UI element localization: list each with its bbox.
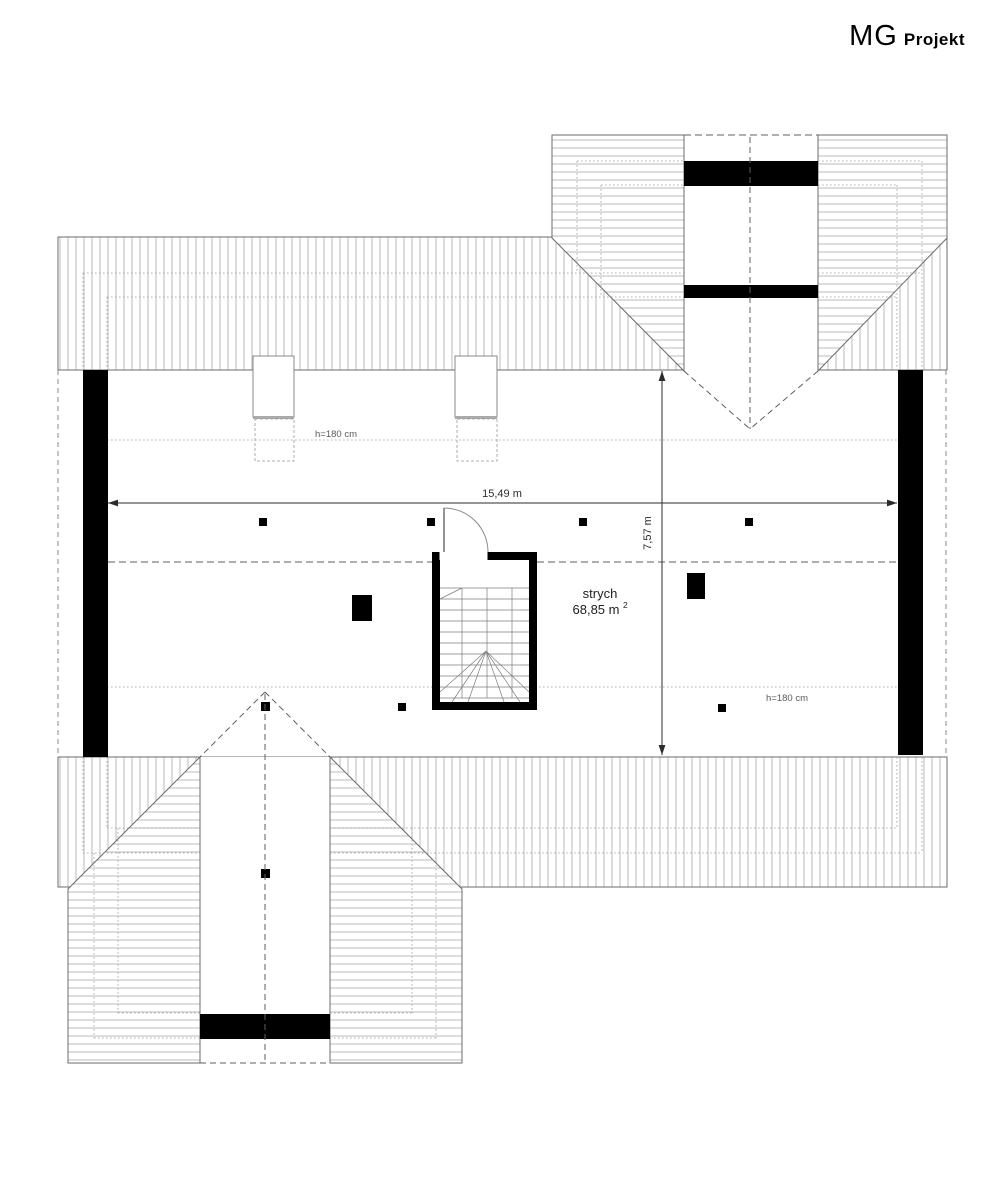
post-marker bbox=[398, 703, 406, 711]
stairwell bbox=[432, 508, 537, 710]
post-marker bbox=[718, 704, 726, 712]
arrow-right-icon bbox=[887, 500, 897, 507]
arrow-left-icon bbox=[108, 500, 118, 507]
knee-height-label-bottom: h=180 cm bbox=[766, 693, 808, 704]
post-marker bbox=[745, 518, 753, 526]
gable-wall-left bbox=[83, 370, 108, 757]
chimney-north-2 bbox=[684, 285, 818, 298]
dimension-width: 15,49 m bbox=[108, 488, 897, 506]
post-marker bbox=[579, 518, 587, 526]
door-swing bbox=[444, 508, 488, 552]
arrow-down-icon bbox=[659, 745, 666, 755]
post-marker bbox=[259, 518, 267, 526]
attic-floor-plan-drawing: 15,49 m 7,57 m h=180 cm h=180 cm strych … bbox=[0, 0, 995, 1182]
arrow-up-icon bbox=[659, 371, 666, 381]
roof-window-1 bbox=[253, 356, 294, 461]
floor-plan-page: MG Projekt bbox=[0, 0, 995, 1182]
chimney-interior-right bbox=[687, 573, 705, 599]
roof-window-2 bbox=[455, 356, 497, 461]
dimension-width-label: 15,49 m bbox=[482, 488, 522, 500]
post-marker bbox=[427, 518, 435, 526]
gable-wall-right bbox=[898, 370, 923, 755]
chimney-north-1 bbox=[684, 161, 818, 186]
room-area-superscript: 2 bbox=[623, 600, 628, 610]
knee-height-label-top: h=180 cm bbox=[315, 429, 357, 440]
room-label: strych 68,85 m 2 bbox=[573, 586, 628, 617]
dimension-depth: 7,57 m bbox=[642, 371, 665, 755]
dimension-depth-label: 7,57 m bbox=[642, 516, 654, 550]
chimney-interior-left bbox=[352, 595, 372, 621]
room-name: strych bbox=[583, 586, 618, 601]
room-area: 68,85 m bbox=[573, 602, 620, 617]
